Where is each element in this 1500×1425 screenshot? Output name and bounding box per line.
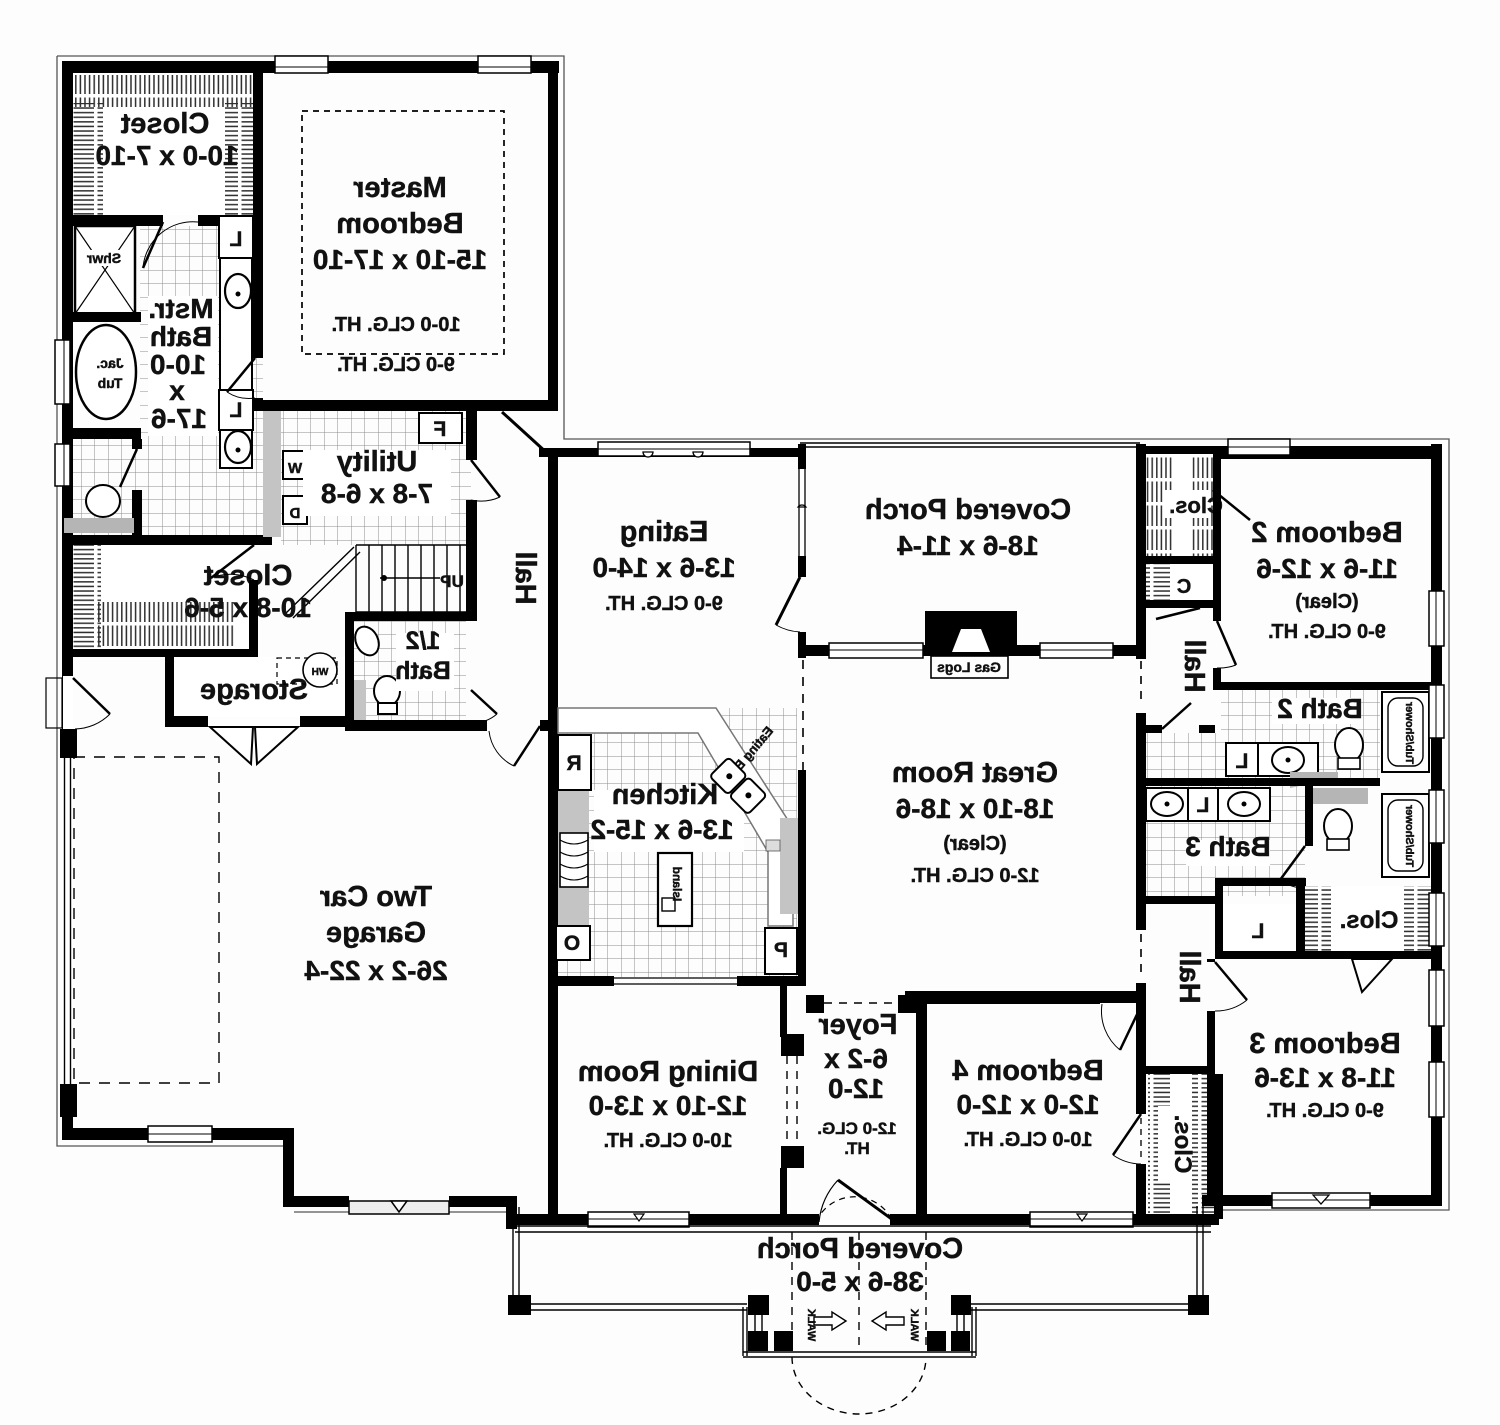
svg-text:38-6 x 5-0: 38-6 x 5-0 [796, 1266, 924, 1297]
svg-text:L: L [1235, 750, 1248, 773]
svg-text:Hall: Hall [1173, 950, 1205, 1003]
svg-text:Closet: Closet [120, 108, 209, 140]
svg-text:WH: WH [312, 667, 329, 678]
svg-text:Utility: Utility [337, 446, 418, 478]
svg-text:12-0 CLG.: 12-0 CLG. [817, 1119, 896, 1138]
svg-text:Covered Porch: Covered Porch [865, 494, 1071, 526]
svg-text:Clos.: Clos. [1340, 907, 1399, 934]
svg-text:10-0 x 7-10: 10-0 x 7-10 [95, 140, 238, 171]
svg-text:Tub/Shower: Tub/Shower [1403, 701, 1415, 764]
svg-text:Shwr: Shwr [86, 250, 121, 266]
svg-text:13-6 x 14-0: 13-6 x 14-0 [592, 552, 735, 583]
svg-text:10-8 x 5-6: 10-8 x 5-6 [184, 592, 312, 623]
svg-text:Two Car: Two Car [320, 881, 432, 913]
svg-text:Tub: Tub [98, 375, 123, 391]
svg-text:18-6 x 11-4: 18-6 x 11-4 [897, 530, 1039, 561]
svg-text:Gas Logs: Gas Logs [937, 659, 1001, 675]
svg-text:Covered Porch: Covered Porch [757, 1233, 963, 1265]
svg-text:W: W [287, 460, 302, 477]
svg-text:Storage: Storage [200, 674, 308, 706]
svg-text:R: R [566, 752, 581, 775]
svg-text:26-2 x 22-4: 26-2 x 22-4 [304, 955, 448, 986]
svg-text:UP: UP [440, 572, 464, 591]
svg-text:Garage: Garage [326, 917, 426, 949]
svg-text:Bedroom 3: Bedroom 3 [1249, 1028, 1400, 1060]
svg-text:15-10 x 17-10: 15-10 x 17-10 [313, 244, 487, 275]
svg-text:F: F [433, 418, 446, 441]
svg-text:9-0 CLG. HT.: 9-0 CLG. HT. [1268, 621, 1386, 643]
svg-text:10-0 CLG. HT.: 10-0 CLG. HT. [964, 1129, 1093, 1151]
svg-text:Bath 3: Bath 3 [1185, 831, 1271, 862]
svg-text:10-0 CLG. HT.: 10-0 CLG. HT. [604, 1130, 733, 1152]
svg-text:(Clear): (Clear) [1295, 591, 1358, 613]
svg-text:18-10 x 18-6: 18-10 x 18-6 [896, 793, 1055, 824]
svg-text:Clos.: Clos. [1169, 1115, 1196, 1174]
svg-text:Bedroom 4: Bedroom 4 [952, 1055, 1103, 1087]
svg-text:L: L [229, 228, 242, 251]
svg-text:12-0 CLG. HT.: 12-0 CLG. HT. [911, 865, 1040, 887]
svg-text:Bedroom: Bedroom [336, 208, 463, 240]
svg-text:Bath: Bath [150, 321, 212, 352]
svg-text:C: C [1177, 576, 1191, 598]
svg-text:13-6 x 15-2: 13-6 x 15-2 [590, 814, 733, 845]
svg-text:6-2 x: 6-2 x [824, 1043, 888, 1074]
svg-text:9-0 CLG. HT.: 9-0 CLG. HT. [605, 593, 723, 615]
svg-text:17-6: 17-6 [151, 403, 207, 434]
svg-text:WALK: WALK [908, 1309, 920, 1341]
svg-text:WALK: WALK [805, 1309, 817, 1341]
svg-text:Bath 2: Bath 2 [1277, 693, 1363, 724]
svg-text:10-0 CLG. HT.: 10-0 CLG. HT. [332, 314, 461, 336]
svg-text:9-0 CLG. HT.: 9-0 CLG. HT. [1266, 1100, 1384, 1122]
svg-text:Hall: Hall [1178, 639, 1210, 692]
svg-text:Bedroom 2: Bedroom 2 [1251, 517, 1402, 549]
svg-text:HT.: HT. [844, 1139, 870, 1158]
svg-text:Kitchen: Kitchen [612, 779, 718, 811]
svg-text:Master: Master [353, 172, 447, 204]
svg-text:Foyer: Foyer [819, 1009, 898, 1041]
svg-text:L: L [1196, 794, 1209, 817]
svg-text:(Clear): (Clear) [943, 833, 1006, 855]
svg-text:Great Room: Great Room [892, 757, 1058, 789]
svg-text:11-6 x 12-6: 11-6 x 12-6 [1256, 553, 1398, 584]
svg-text:Bath: Bath [395, 657, 451, 685]
svg-text:Eating: Eating [620, 516, 709, 548]
svg-text:L: L [229, 399, 242, 422]
svg-text:12-0: 12-0 [828, 1073, 884, 1104]
svg-text:11-8 x 13-6: 11-8 x 13-6 [1254, 1062, 1396, 1093]
svg-text:Hall: Hall [509, 551, 541, 604]
svg-text:12-10 x 13-0: 12-10 x 13-0 [589, 1090, 748, 1121]
svg-text:7-8 x 6-8: 7-8 x 6-8 [321, 478, 433, 509]
svg-text:Tub/Shower: Tub/Shower [1403, 804, 1415, 867]
svg-text:Dining Room: Dining Room [578, 1056, 758, 1088]
svg-text:1/2: 1/2 [406, 627, 441, 655]
svg-text:Mstr.: Mstr. [148, 293, 213, 324]
svg-text:12-0 x 12-0: 12-0 x 12-0 [956, 1089, 1099, 1120]
svg-text:O: O [564, 932, 580, 955]
svg-text:P: P [774, 939, 788, 962]
svg-text:9-0 CLG. HT.: 9-0 CLG. HT. [337, 354, 455, 376]
svg-text:Island: Island [670, 867, 684, 902]
svg-text:Jac.: Jac. [96, 355, 123, 371]
svg-text:D: D [289, 505, 300, 522]
svg-text:L: L [1251, 920, 1264, 943]
svg-text:x: x [169, 375, 185, 406]
